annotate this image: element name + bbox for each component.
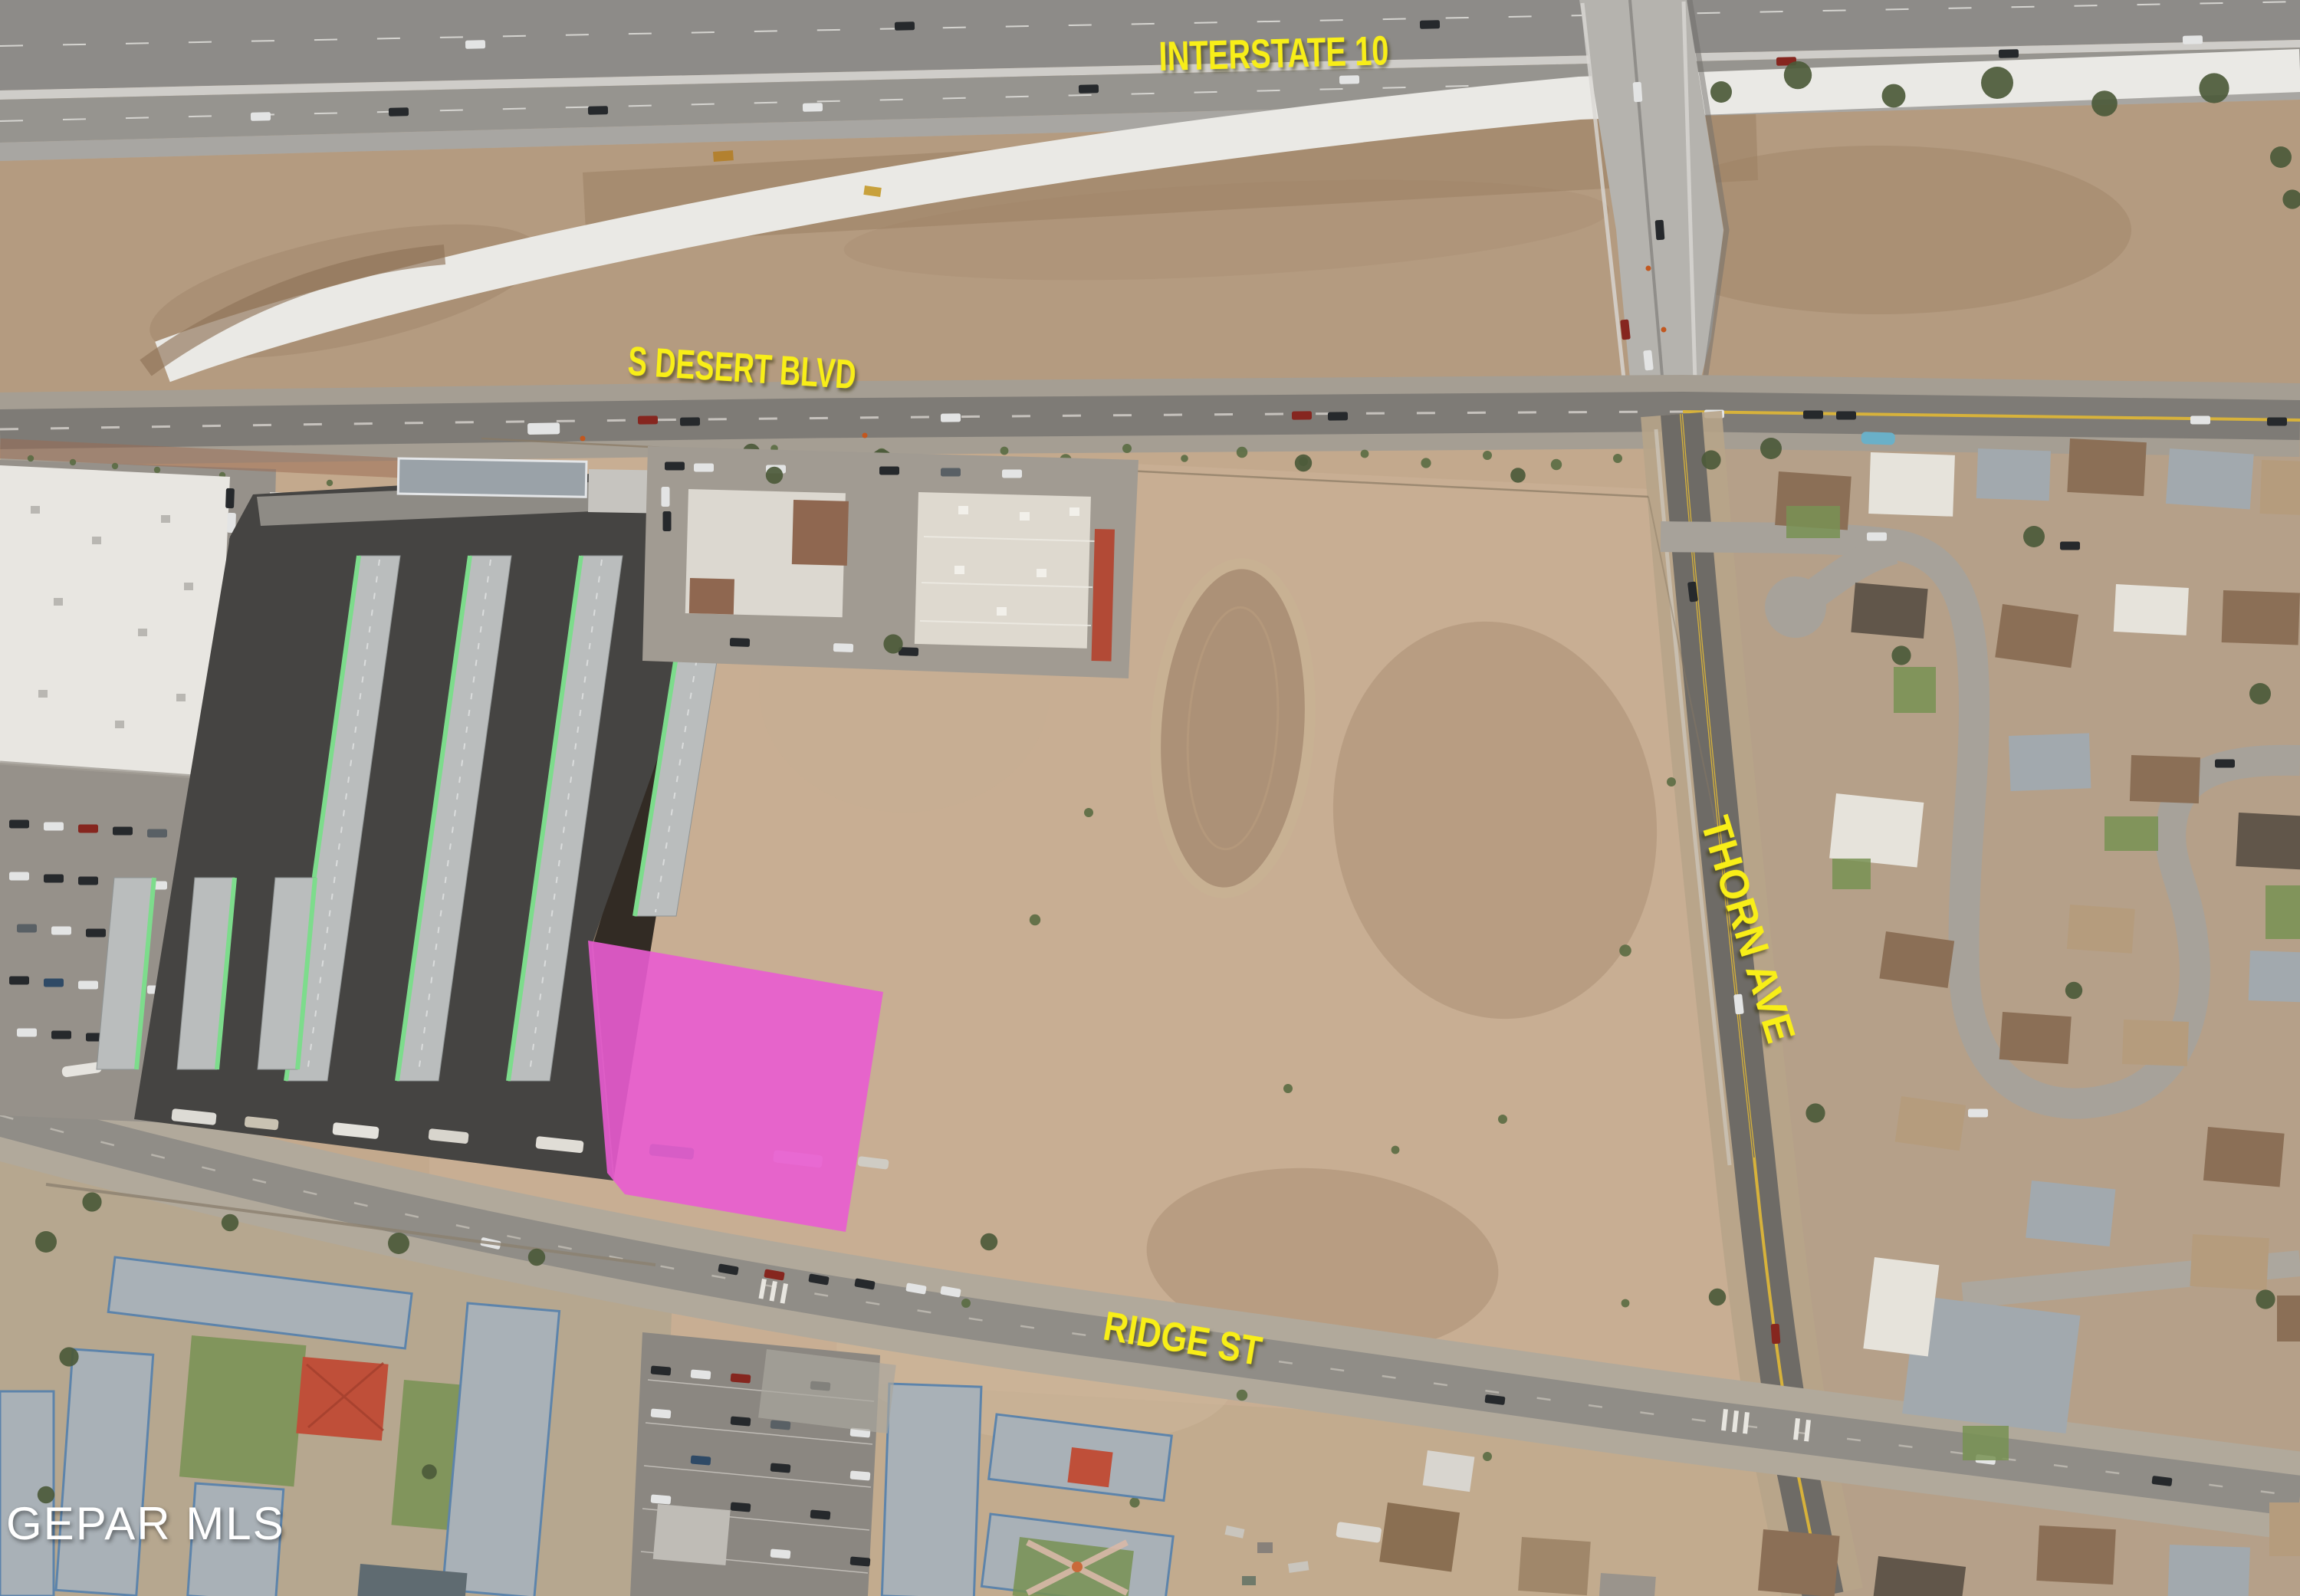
commercial-buildings [642, 446, 1138, 678]
parcel-highlight [588, 941, 883, 1232]
swimming-pool [1861, 432, 1895, 445]
interstate-10-label: INTERSTATE 10 [1158, 28, 1389, 80]
aerial-scene: INTERSTATE 10 S DESERT BLVD THORN AVE RI… [0, 0, 2300, 1596]
red-roof-strip-building [1091, 529, 1114, 662]
truck [527, 422, 560, 435]
gepar-mls-watermark: GEPAR MLS [6, 1498, 285, 1549]
entrance-canopy [398, 458, 586, 497]
aerial-photo-canvas: INTERSTATE 10 S DESERT BLVD THORN AVE RI… [0, 0, 2300, 1596]
parcel-polygon [588, 941, 883, 1232]
s-desert-blvd-road [0, 410, 2300, 442]
